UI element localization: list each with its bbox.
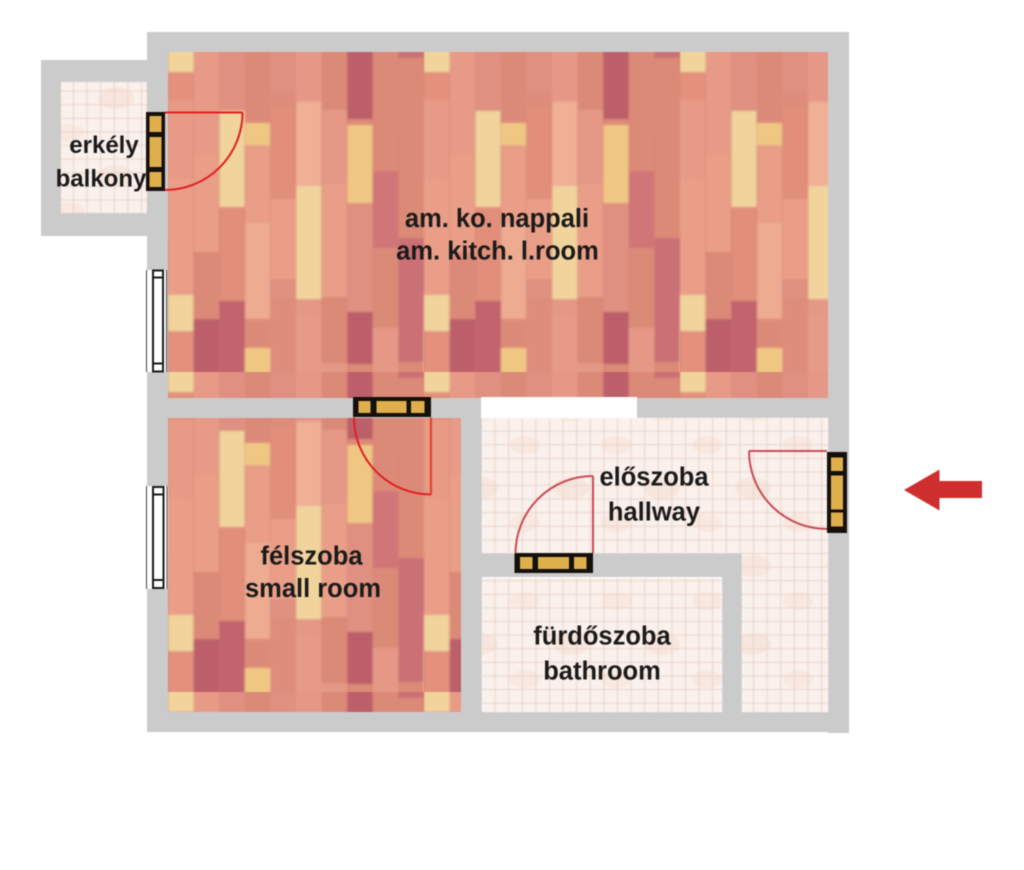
svg-text:erkély: erkély [69, 132, 139, 159]
svg-text:előszoba: előszoba [599, 464, 709, 492]
svg-text:small room: small room [245, 575, 381, 603]
svg-text:am. ko. nappali: am. ko. nappali [405, 205, 589, 233]
svg-text:félszoba: félszoba [260, 543, 363, 571]
svg-text:am. kitch. l.room: am. kitch. l.room [396, 238, 599, 266]
svg-text:balkony: balkony [56, 166, 147, 193]
svg-text:hallway: hallway [608, 499, 701, 527]
svg-text:fürdőszoba: fürdőszoba [533, 623, 671, 651]
svg-text:bathroom: bathroom [543, 658, 661, 686]
